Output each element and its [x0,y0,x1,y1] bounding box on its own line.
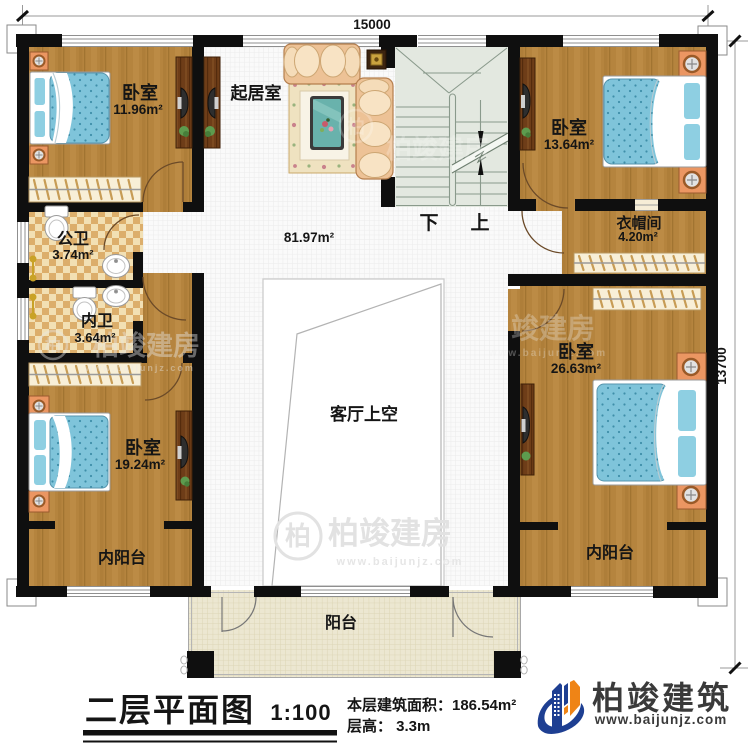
svg-text:3.74m²: 3.74m² [52,247,94,262]
svg-text:卧室: 卧室 [125,437,161,458]
svg-text:上: 上 [470,212,489,234]
svg-text:本层建筑面积：186.54m²: 本层建筑面积：186.54m² [347,696,516,714]
svg-text:11.96m²: 11.96m² [113,102,163,117]
svg-text:www.baijunjz.com: www.baijunjz.com [336,556,464,568]
svg-text:柏竣建筑: 柏竣建筑 [592,680,732,716]
svg-text:柏: 柏 [347,116,365,137]
svg-text:阳台: 阳台 [325,613,357,632]
svg-text:内阳台: 内阳台 [98,548,146,567]
svg-text:4.20m²: 4.20m² [618,230,658,244]
svg-text:1:100: 1:100 [270,700,331,725]
svg-text:二层平面图: 二层平面图 [85,692,255,728]
svg-text:下: 下 [419,213,438,234]
svg-text:柏竣建房: 柏竣建房 [328,516,452,551]
svg-text:内阳台: 内阳台 [586,543,634,562]
svg-text:www.baijunjz.com: www.baijunjz.com [84,363,195,373]
svg-text:3.64m²: 3.64m² [74,330,116,345]
svg-text:层高： 3.3m: 层高： 3.3m [347,717,430,735]
svg-text:26.63m²: 26.63m² [551,361,602,376]
svg-text:卧室: 卧室 [122,82,158,103]
svg-text:19.24m²: 19.24m² [115,457,166,472]
svg-text:客厅上空: 客厅上空 [329,404,398,424]
svg-text:起居室: 起居室 [230,83,282,103]
svg-text:柏竣建房: 柏竣建房 [386,134,490,164]
svg-text:柏: 柏 [45,336,61,355]
svg-text:竣建房: 竣建房 [511,312,595,344]
svg-text:13.64m²: 13.64m² [544,137,595,152]
svg-text:卧室: 卧室 [558,341,594,362]
svg-text:15000: 15000 [353,17,391,32]
svg-text:内卫: 内卫 [81,311,113,330]
svg-text:柏: 柏 [285,521,311,551]
svg-text:卧室: 卧室 [551,117,587,138]
svg-text:www.baijunjz.com: www.baijunjz.com [594,712,728,727]
svg-text:81.97m²: 81.97m² [284,230,335,245]
svg-text:公卫: 公卫 [57,230,89,248]
